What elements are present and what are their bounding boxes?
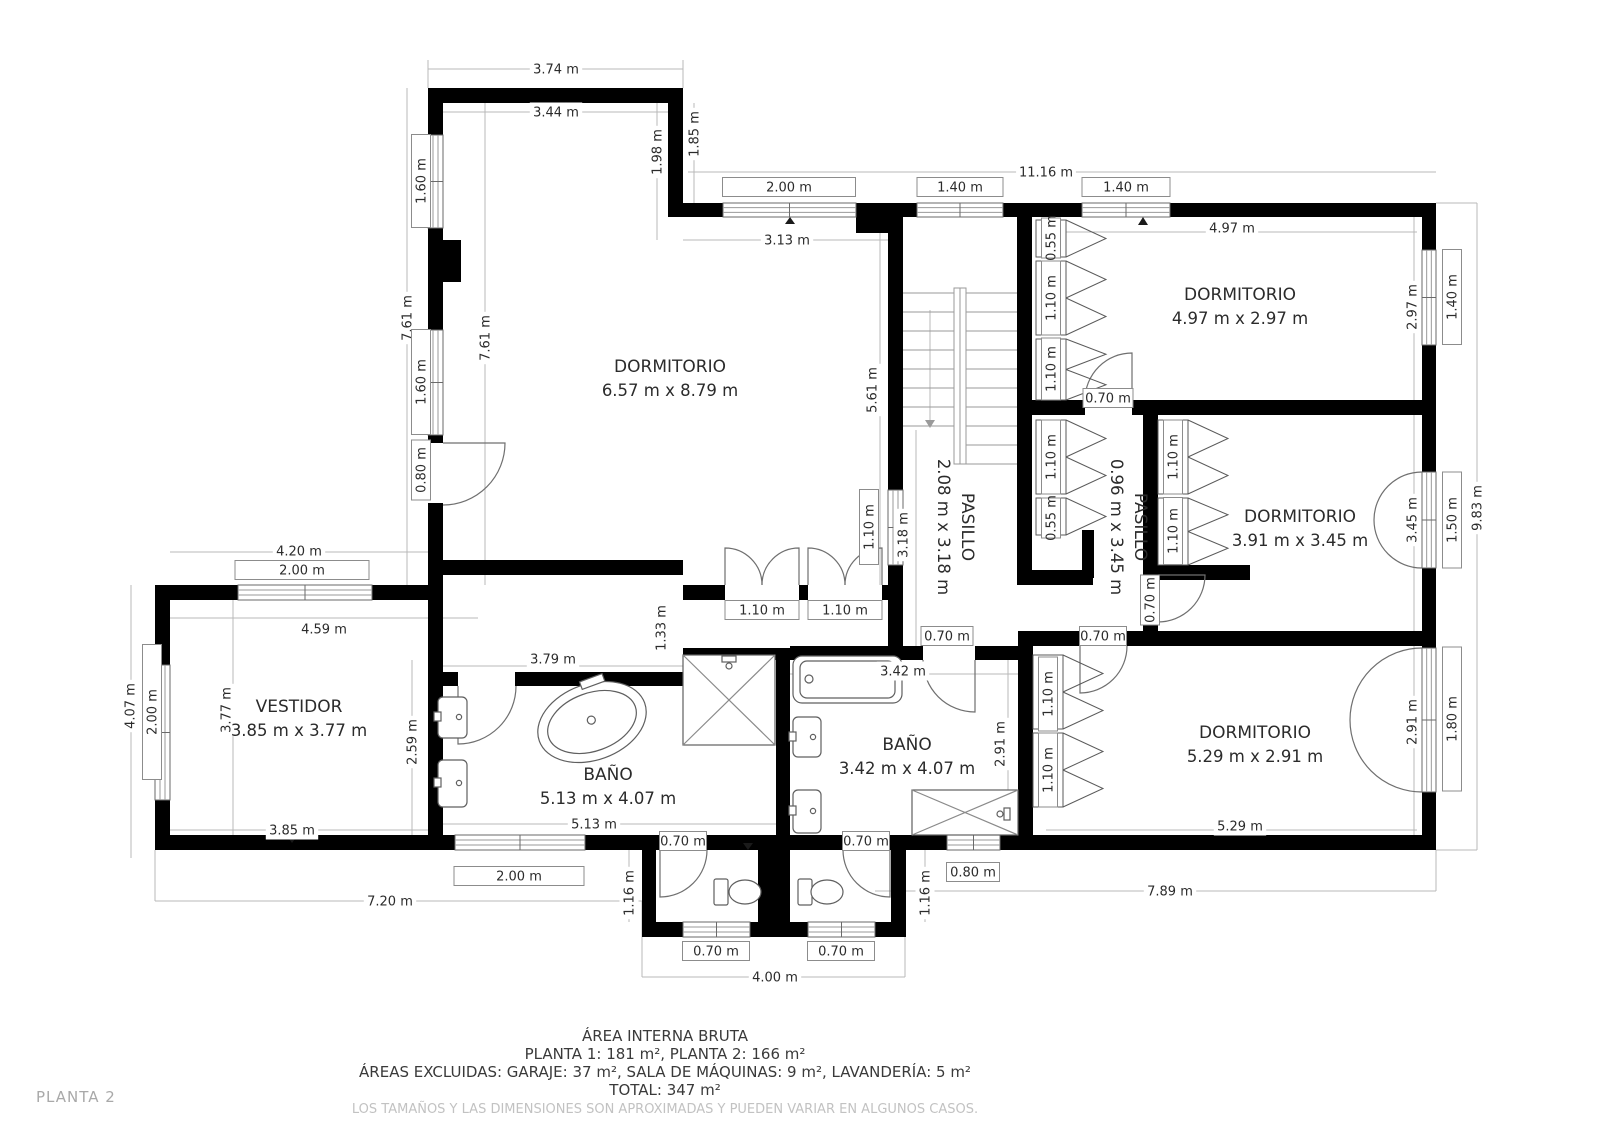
dimension-label: 3.85 m: [266, 821, 318, 840]
dimension-label: 4.07 m: [121, 680, 140, 732]
window-icon: [455, 835, 585, 850]
svg-text:3.45 m: 3.45 m: [1406, 497, 1421, 543]
svg-text:6.57 m x 8.79 m: 6.57 m x 8.79 m: [602, 381, 738, 400]
window-icon: [917, 203, 1003, 217]
svg-text:1.10 m: 1.10 m: [1045, 434, 1060, 480]
door-corridor-left-leaf1: [725, 548, 762, 585]
svg-text:1.16 m: 1.16 m: [919, 870, 934, 916]
svg-text:2.00 m: 2.00 m: [279, 564, 325, 579]
toilet-icon: [798, 879, 843, 905]
room-label: DORMITORIO3.91 m x 3.45 m: [1232, 507, 1368, 550]
dimension-label: 1.33 m: [652, 602, 671, 654]
dimension-label: 0.70 m: [1083, 389, 1133, 408]
svg-text:5.29 m: 5.29 m: [1217, 820, 1263, 835]
svg-text:PASILLO: PASILLO: [957, 493, 977, 561]
svg-text:0.70 m: 0.70 m: [1144, 577, 1159, 623]
window-icon: [1422, 250, 1436, 345]
svg-text:3.42 m: 3.42 m: [880, 665, 926, 680]
svg-text:0.80 m: 0.80 m: [950, 866, 996, 881]
svg-text:0.96 m x 3.45 m: 0.96 m x 3.45 m: [1107, 459, 1126, 595]
dimension-label: 1.10 m: [1042, 338, 1061, 400]
svg-text:3.85 m x 3.77 m: 3.85 m x 3.77 m: [231, 721, 367, 740]
svg-text:PASILLO: PASILLO: [1130, 493, 1150, 561]
svg-text:2.00 m: 2.00 m: [766, 181, 812, 196]
floor-areas: PLANTA 1: 181 m², PLANTA 2: 166 m²: [0, 1046, 1330, 1063]
window-icon: [723, 203, 856, 217]
svg-text:2.91 m: 2.91 m: [1406, 699, 1421, 745]
floor-name: PLANTA 2: [36, 1088, 116, 1106]
svg-text:7.20 m: 7.20 m: [367, 895, 413, 910]
svg-text:0.70 m: 0.70 m: [818, 945, 864, 960]
svg-text:5.13 m: 5.13 m: [571, 818, 617, 833]
svg-text:3.85 m: 3.85 m: [269, 824, 315, 839]
window-icon: [947, 835, 1000, 850]
svg-text:1.10 m: 1.10 m: [1045, 346, 1060, 392]
svg-text:1.10 m: 1.10 m: [822, 604, 868, 619]
svg-text:2.00 m: 2.00 m: [146, 689, 161, 735]
dimension-label: 0.70 m: [660, 832, 707, 851]
dimension-label: 1.80 m: [1443, 647, 1462, 791]
svg-text:1.10 m: 1.10 m: [1167, 434, 1182, 480]
dimension-label: 3.13 m: [761, 231, 813, 250]
svg-text:1.33 m: 1.33 m: [655, 605, 670, 651]
svg-text:1.40 m: 1.40 m: [1446, 274, 1461, 320]
svg-text:3.91 m x 3.45 m: 3.91 m x 3.45 m: [1232, 531, 1368, 550]
svg-text:VESTIDOR: VESTIDOR: [256, 697, 343, 717]
svg-text:0.70 m: 0.70 m: [843, 835, 889, 850]
dimension-label: 3.45 m: [1403, 494, 1422, 546]
svg-text:0.70 m: 0.70 m: [693, 945, 739, 960]
svg-text:5.29 m x 2.91 m: 5.29 m x 2.91 m: [1187, 747, 1323, 766]
shower1-icon: [683, 655, 775, 745]
dimension-label: 2.00 m: [723, 178, 856, 197]
svg-text:4.07 m: 4.07 m: [124, 683, 139, 729]
svg-text:7.61 m: 7.61 m: [479, 315, 494, 361]
room-label: BAÑO5.13 m x 4.07 m: [540, 763, 676, 808]
dimension-label: 0.80 m: [947, 863, 1000, 882]
dimension-label: 1.50 m: [1443, 472, 1462, 568]
svg-text:5.61 m: 5.61 m: [866, 367, 881, 413]
dimension-label: 1.40 m: [1082, 178, 1170, 197]
svg-text:3.74 m: 3.74 m: [533, 63, 579, 78]
dimension-label: 0.70 m: [843, 832, 890, 851]
dimension-label: 5.61 m: [863, 364, 882, 416]
floorplan-svg: 3.74 m3.44 m1.85 m1.98 m1.60 m7.61 m7.61…: [0, 0, 1600, 1010]
svg-text:0.70 m: 0.70 m: [924, 630, 970, 645]
window-icon: [808, 922, 875, 937]
dimension-label: 1.98 m: [648, 126, 667, 178]
door-bedroom2: [1158, 575, 1205, 622]
svg-text:7.89 m: 7.89 m: [1147, 885, 1193, 900]
dimension-label: 0.80 m: [412, 440, 431, 500]
svg-text:DORMITORIO: DORMITORIO: [614, 357, 726, 377]
svg-text:4.97 m: 4.97 m: [1209, 222, 1255, 237]
dimension-label: 1.16 m: [916, 867, 935, 919]
sink-icon: [434, 697, 467, 738]
dimension-label: 3.44 m: [530, 103, 582, 122]
svg-text:4.59 m: 4.59 m: [301, 623, 347, 638]
sink-icon: [434, 760, 467, 807]
svg-text:1.80 m: 1.80 m: [1446, 696, 1461, 742]
door-corridor-right-leaf1: [808, 548, 845, 585]
svg-text:1.50 m: 1.50 m: [1446, 497, 1461, 543]
door-main-bedroom: [443, 443, 505, 505]
dimension-label: 5.13 m: [568, 815, 620, 834]
svg-text:1.10 m: 1.10 m: [739, 604, 785, 619]
dimension-label: 0.70 m: [808, 942, 875, 961]
dimension-label: 1.10 m: [1164, 420, 1183, 494]
svg-text:0.70 m: 0.70 m: [1080, 630, 1126, 645]
dimension-label: 11.16 m: [1016, 163, 1076, 182]
floorplan-canvas: 3.74 m3.44 m1.85 m1.98 m1.60 m7.61 m7.61…: [0, 0, 1600, 1010]
svg-text:1.85 m: 1.85 m: [688, 111, 703, 157]
dimension-label: 2.97 m: [1403, 281, 1422, 333]
svg-text:4.97 m x 2.97 m: 4.97 m x 2.97 m: [1172, 309, 1308, 328]
svg-text:0.55 m: 0.55 m: [1045, 215, 1060, 261]
window-icon: [1082, 203, 1170, 217]
dimension-label: 1.16 m: [620, 867, 639, 919]
svg-text:1.10 m: 1.10 m: [1045, 275, 1060, 321]
svg-text:DORMITORIO: DORMITORIO: [1244, 507, 1356, 527]
dimension-label: 0.70 m: [921, 627, 973, 646]
svg-text:3.79 m: 3.79 m: [530, 653, 576, 668]
dimension-label: 3.74 m: [530, 60, 582, 79]
dimension-label: 2.91 m: [1403, 696, 1422, 748]
dimension-label: 0.70 m: [683, 942, 750, 961]
area-summary: ÁREA INTERNA BRUTA PLANTA 1: 181 m², PLA…: [0, 1028, 1330, 1118]
room-label: VESTIDOR3.85 m x 3.77 m: [231, 697, 367, 740]
svg-text:9.83 m: 9.83 m: [1471, 485, 1486, 531]
window-icon: [238, 585, 372, 600]
window-icon: [683, 922, 750, 937]
svg-text:BAÑO: BAÑO: [882, 733, 931, 755]
svg-text:2.91 m: 2.91 m: [994, 721, 1009, 767]
svg-text:2.97 m: 2.97 m: [1406, 284, 1421, 330]
dimension-label: 3.18 m: [894, 509, 913, 561]
svg-text:2.59 m: 2.59 m: [406, 719, 421, 765]
staircase: [903, 288, 1017, 464]
svg-text:4.20 m: 4.20 m: [276, 545, 322, 560]
svg-text:2.08 m x 3.18 m: 2.08 m x 3.18 m: [934, 459, 953, 595]
svg-text:2.00 m: 2.00 m: [496, 870, 542, 885]
dimension-label: 1.10 m: [1042, 261, 1061, 335]
svg-text:11.16 m: 11.16 m: [1019, 166, 1073, 181]
svg-text:0.80 m: 0.80 m: [415, 447, 430, 493]
door-bedroom3: [1080, 646, 1127, 693]
dimension-label: 2.00 m: [143, 645, 162, 780]
door-hall-bath2: [923, 660, 975, 712]
dimension-label: 2.91 m: [991, 718, 1010, 770]
svg-text:1.98 m: 1.98 m: [651, 129, 666, 175]
dimension-label: 1.10 m: [860, 490, 879, 565]
excluded-areas: ÁREAS EXCLUIDAS: GARAJE: 37 m², SALA DE …: [0, 1064, 1330, 1081]
gross-internal-area-title: ÁREA INTERNA BRUTA: [0, 1028, 1330, 1045]
svg-text:DORMITORIO: DORMITORIO: [1199, 723, 1311, 743]
room-label: PASILLO2.08 m x 3.18 m: [934, 459, 977, 595]
dimension-label: 1.60 m: [412, 330, 431, 435]
svg-text:3.18 m: 3.18 m: [897, 512, 912, 558]
svg-text:1.10 m: 1.10 m: [1042, 671, 1057, 717]
door-toilet1: [660, 850, 707, 897]
dimension-label: 1.10 m: [808, 601, 882, 620]
dimension-label: 2.00 m: [235, 561, 369, 580]
svg-text:3.44 m: 3.44 m: [533, 106, 579, 121]
svg-text:3.13 m: 3.13 m: [764, 234, 810, 249]
room-label: BAÑO3.42 m x 4.07 m: [839, 733, 975, 778]
window-icon: [1422, 472, 1436, 568]
dimension-label: 1.10 m: [1164, 498, 1183, 565]
svg-text:0.55 m: 0.55 m: [1045, 495, 1060, 541]
toilet-icon: [714, 879, 761, 905]
dimension-label: 0.70 m: [1080, 627, 1127, 646]
dimension-label: 3.79 m: [527, 650, 579, 669]
svg-text:BAÑO: BAÑO: [583, 763, 632, 785]
svg-text:1.10 m: 1.10 m: [1042, 747, 1057, 793]
dimension-label: 1.40 m: [917, 178, 1003, 197]
dimension-label: 2.59 m: [403, 716, 422, 768]
dimension-label: 1.10 m: [725, 601, 799, 620]
svg-text:3.42 m x 4.07 m: 3.42 m x 4.07 m: [839, 759, 975, 778]
room-label: DORMITORIO6.57 m x 8.79 m: [602, 357, 738, 400]
room-label: DORMITORIO5.29 m x 2.91 m: [1187, 723, 1323, 766]
svg-text:1.10 m: 1.10 m: [863, 504, 878, 550]
dimension-label: 0.70 m: [1141, 575, 1160, 625]
dimension-label: 7.20 m: [364, 892, 416, 911]
svg-text:1.40 m: 1.40 m: [1103, 181, 1149, 196]
dimension-label: 4.00 m: [749, 968, 801, 987]
dimension-label: 7.89 m: [1144, 882, 1196, 901]
svg-text:1.40 m: 1.40 m: [937, 181, 983, 196]
svg-text:1.60 m: 1.60 m: [415, 359, 430, 405]
sink-icon: [789, 717, 821, 757]
svg-text:DORMITORIO: DORMITORIO: [1184, 285, 1296, 305]
dimension-label: 2.00 m: [454, 867, 584, 886]
dimension-label: 1.85 m: [685, 108, 704, 160]
svg-text:1.60 m: 1.60 m: [415, 158, 430, 204]
door-toilet2: [843, 850, 890, 897]
dimension-label: 9.83 m: [1468, 482, 1487, 534]
svg-text:0.70 m: 0.70 m: [1085, 392, 1131, 407]
dimension-label: 4.97 m: [1206, 219, 1258, 238]
dimension-label: 0.55 m: [1042, 495, 1061, 541]
dimension-label: 5.29 m: [1214, 817, 1266, 836]
shower2-icon: [912, 790, 1018, 835]
dimension-label: 7.61 m: [476, 312, 495, 364]
sink-icon: [789, 790, 821, 833]
room-label: DORMITORIO4.97 m x 2.97 m: [1172, 285, 1308, 328]
total-area: TOTAL: 347 m²: [0, 1082, 1330, 1099]
dimension-label: 1.10 m: [1042, 420, 1061, 494]
dimension-label: 1.10 m: [1039, 733, 1058, 807]
floorplan-page: { "plan_label": "PLANTA 2", "footer": { …: [0, 0, 1600, 1130]
door-corridor-left-leaf2: [762, 548, 799, 585]
dimension-label: 0.55 m: [1042, 215, 1061, 261]
window-icon: [1422, 648, 1436, 792]
svg-text:1.16 m: 1.16 m: [623, 870, 638, 916]
dimension-label: 4.59 m: [298, 620, 350, 639]
dimension-label: 1.60 m: [412, 135, 431, 228]
svg-text:0.70 m: 0.70 m: [660, 835, 706, 850]
svg-text:1.10 m: 1.10 m: [1167, 508, 1182, 554]
disclaimer-text: LOS TAMAÑOS Y LAS DIMENSIONES SON APROXI…: [0, 1101, 1330, 1118]
dimension-label: 4.20 m: [273, 542, 325, 561]
dimension-label: 1.10 m: [1039, 657, 1058, 731]
dimension-label: 1.40 m: [1443, 250, 1462, 345]
dimension-label: 3.42 m: [877, 662, 929, 681]
svg-text:5.13 m x 4.07 m: 5.13 m x 4.07 m: [540, 789, 676, 808]
svg-text:4.00 m: 4.00 m: [752, 971, 798, 986]
